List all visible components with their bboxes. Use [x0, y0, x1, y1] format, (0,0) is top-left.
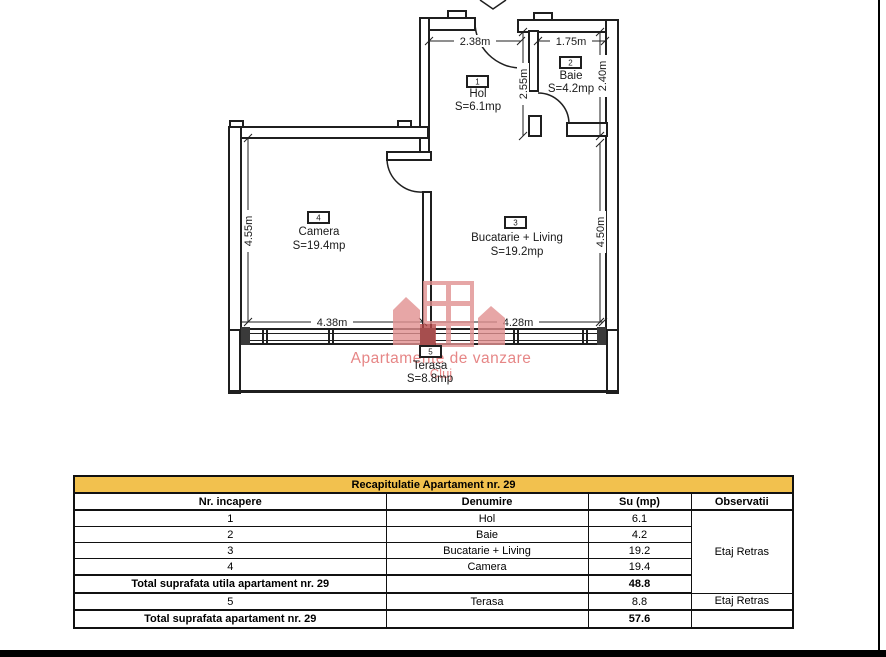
logo-buildings-icon — [393, 283, 505, 347]
cell-nr: 2 — [74, 527, 386, 543]
cell-observatii-merged: Etaj Retras — [691, 510, 793, 593]
col-header-nr: Nr. incapere — [74, 493, 386, 510]
total-observatii — [691, 610, 793, 628]
room-name: Bucatarie + Living — [471, 232, 563, 244]
document-page: 2.38m 1.75m 2.55m 2.40m 4.55m 4.50m 4.38… — [0, 0, 886, 657]
room-number: 4 — [316, 214, 321, 223]
room-area: S=6.1mp — [455, 101, 501, 113]
total-row: Total suprafata apartament nr. 29 57.6 — [74, 610, 793, 628]
room-area: S=19.4mp — [293, 240, 346, 252]
table-row: 3 Bucatarie + Living 19.2 — [74, 543, 793, 559]
room-name: Hol — [469, 88, 486, 100]
dim-baie-width: 1.75m — [556, 36, 587, 48]
total-denumire — [386, 610, 588, 628]
page-bottom-border — [0, 650, 886, 657]
room-name: Baie — [559, 70, 582, 82]
room-area: S=8.8mp — [407, 373, 453, 385]
cell-denumire: Terasa — [386, 593, 588, 610]
cell-denumire: Bucatarie + Living — [386, 543, 588, 559]
summary-table: Recapitulatie Apartament nr. 29 Nr. inca… — [73, 475, 794, 629]
cell-nr: 3 — [74, 543, 386, 559]
room-baie: 2 Baie S=4.2mp — [548, 57, 594, 95]
cell-nr: 1 — [74, 510, 386, 527]
table-row: 1 Hol 6.1 Etaj Retras — [74, 510, 793, 527]
cell-observatii: Etaj Retras — [691, 593, 793, 610]
total-utila-denumire — [386, 575, 588, 593]
room-hol: 1 Hol S=6.1mp — [455, 76, 501, 113]
terasa-row: 5 Terasa 8.8 Etaj Retras — [74, 593, 793, 610]
cell-denumire: Baie — [386, 527, 588, 543]
dim-living-width: 4.28m — [503, 317, 534, 329]
dim-camera-depth: 4.55m — [243, 216, 255, 247]
table-header-row: Nr. incapere Denumire Su (mp) Observatii — [74, 493, 793, 510]
cell-su: 8.8 — [588, 593, 691, 610]
table-row: 4 Camera 19.4 — [74, 559, 793, 576]
room-camera: 4 Camera S=19.4mp — [293, 212, 346, 252]
table-row: 2 Baie 4.2 — [74, 527, 793, 543]
total-utila-su: 48.8 — [588, 575, 691, 593]
room-number: 5 — [428, 348, 433, 357]
room-area: S=19.2mp — [491, 246, 544, 258]
col-header-observatii: Observatii — [691, 493, 793, 510]
total-su: 57.6 — [588, 610, 691, 628]
col-header-su: Su (mp) — [588, 493, 691, 510]
col-header-denumire: Denumire — [386, 493, 588, 510]
cell-denumire: Camera — [386, 559, 588, 576]
dim-living-depth: 4.50m — [595, 217, 607, 248]
page-right-border — [878, 0, 880, 657]
dim-camera-width: 4.38m — [317, 317, 348, 329]
room-name: Camera — [299, 226, 341, 238]
table-title-row: Recapitulatie Apartament nr. 29 — [74, 476, 793, 493]
room-number: 1 — [475, 78, 480, 87]
room-bucatarie-living: 3 Bucatarie + Living S=19.2mp — [471, 217, 563, 258]
room-number: 2 — [568, 59, 573, 68]
cell-su: 6.1 — [588, 510, 691, 527]
total-utila-label: Total suprafata utila apartament nr. 29 — [74, 575, 386, 593]
room-number: 3 — [513, 219, 518, 228]
cell-su: 19.2 — [588, 543, 691, 559]
cell-denumire: Hol — [386, 510, 588, 527]
dim-hol-depth: 2.55m — [518, 69, 530, 100]
room-name: Terasa — [413, 360, 448, 372]
room-area: S=4.2mp — [548, 83, 594, 95]
table-title: Recapitulatie Apartament nr. 29 — [74, 476, 793, 493]
cell-nr: 5 — [74, 593, 386, 610]
total-utila-row: Total suprafata utila apartament nr. 29 … — [74, 575, 793, 593]
cell-nr: 4 — [74, 559, 386, 576]
total-label: Total suprafata apartament nr. 29 — [74, 610, 386, 628]
north-arrow-icon — [480, 0, 506, 9]
dim-baie-depth: 2.40m — [597, 61, 609, 92]
cell-su: 19.4 — [588, 559, 691, 576]
floor-plan: 2.38m 1.75m 2.55m 2.40m 4.55m 4.50m 4.38… — [0, 0, 886, 472]
dim-hol-width: 2.38m — [460, 36, 491, 48]
cell-su: 4.2 — [588, 527, 691, 543]
